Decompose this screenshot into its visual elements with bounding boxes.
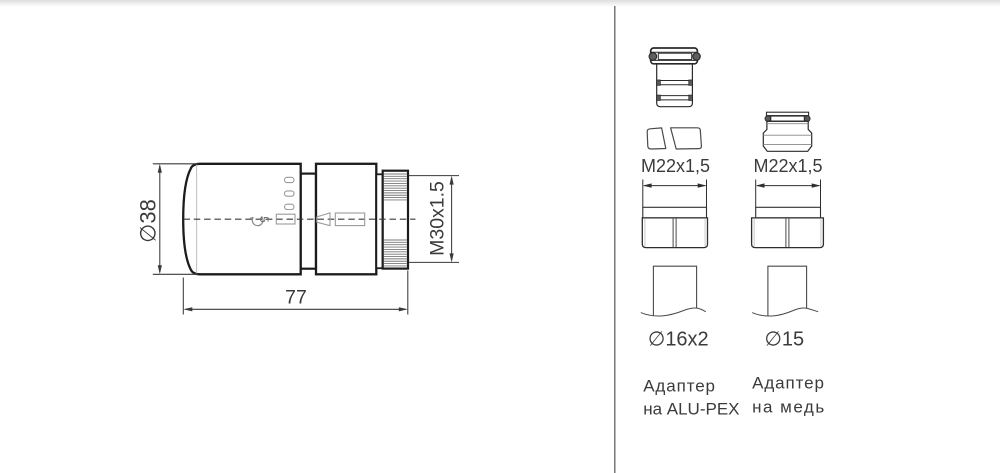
svg-text:Адаптер: Адаптер	[752, 374, 825, 393]
svg-text:Адаптер: Адаптер	[643, 376, 716, 395]
svg-text:на ALU-PEX: на ALU-PEX	[643, 399, 739, 418]
svg-text:M30x1.5: M30x1.5	[427, 181, 449, 256]
svg-text:∅15: ∅15	[764, 329, 804, 351]
svg-text:M22x1,5: M22x1,5	[641, 156, 710, 176]
svg-text:77: 77	[285, 287, 307, 309]
svg-text:∅38: ∅38	[136, 199, 161, 243]
svg-text:∅16x2: ∅16x2	[648, 329, 709, 351]
svg-text:на медь: на медь	[752, 397, 826, 416]
svg-text:M22x1,5: M22x1,5	[753, 156, 822, 176]
svg-text:5: 5	[257, 216, 269, 222]
